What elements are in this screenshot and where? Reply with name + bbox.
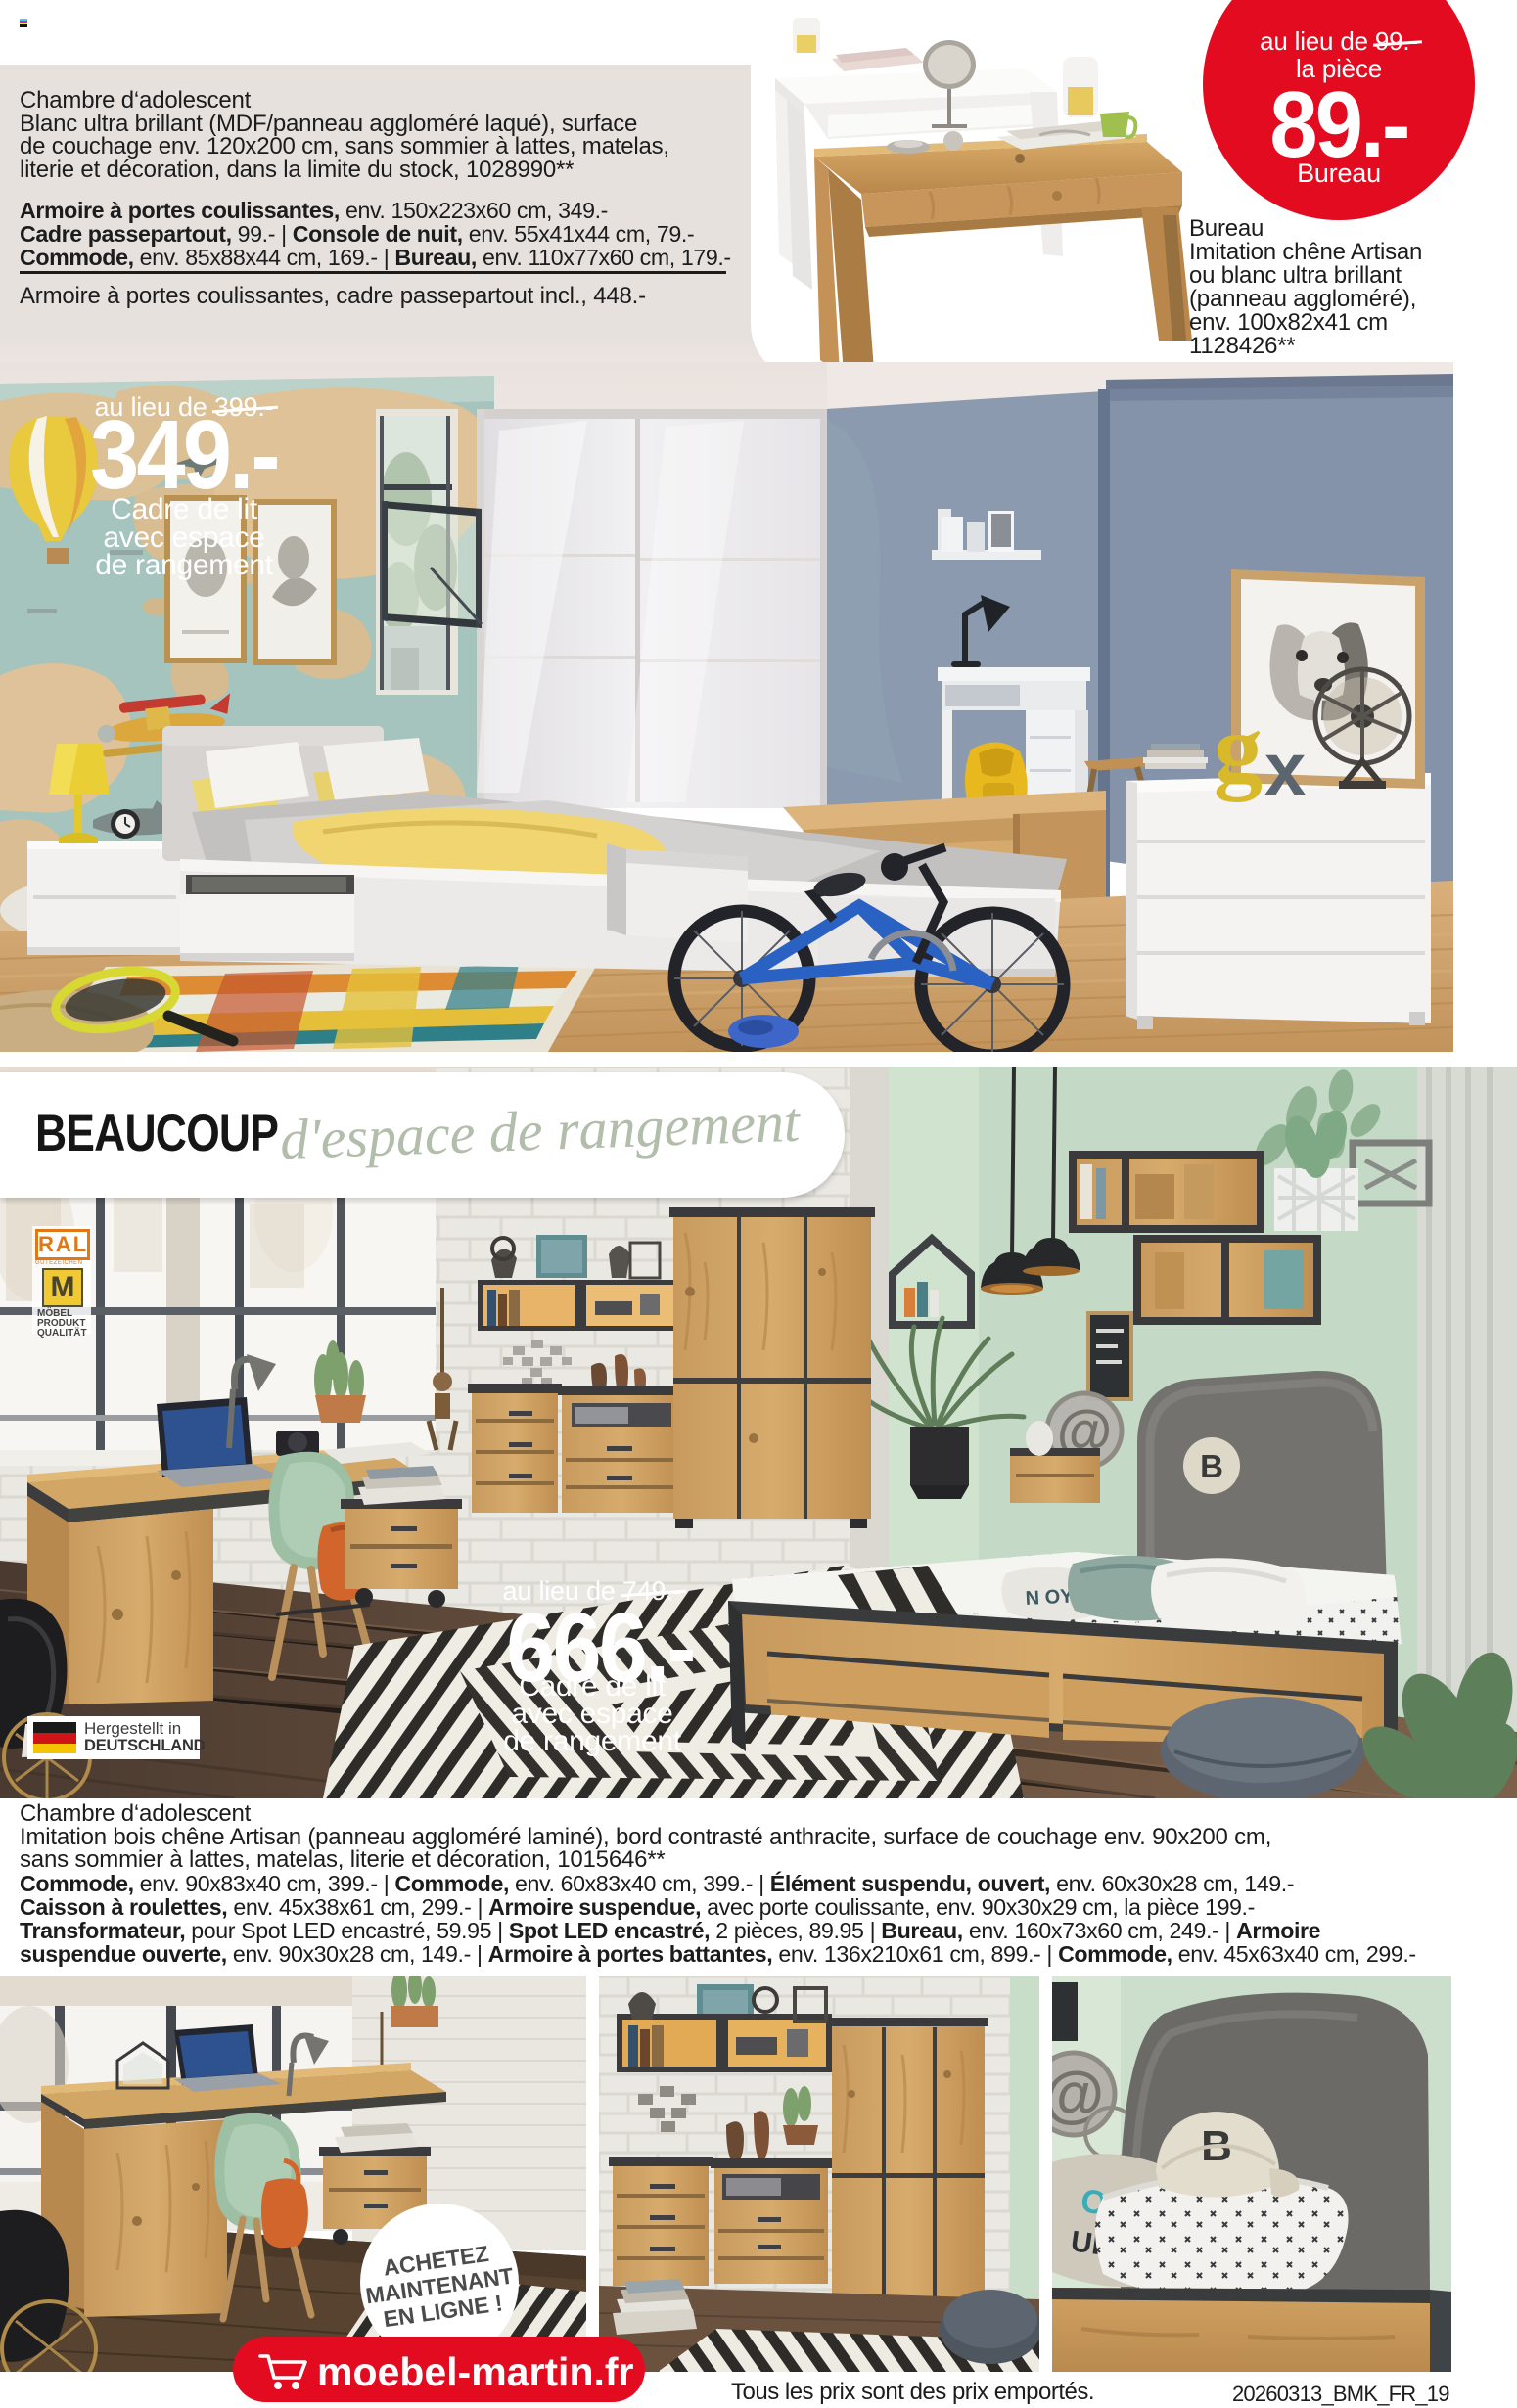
- svg-text:g: g: [1214, 694, 1263, 802]
- svg-text:N OY: N OY: [1025, 1585, 1075, 1610]
- svg-text:x: x: [1264, 728, 1306, 811]
- svg-text:B: B: [1200, 1448, 1223, 1484]
- svg-text:@: @: [1052, 2059, 1104, 2129]
